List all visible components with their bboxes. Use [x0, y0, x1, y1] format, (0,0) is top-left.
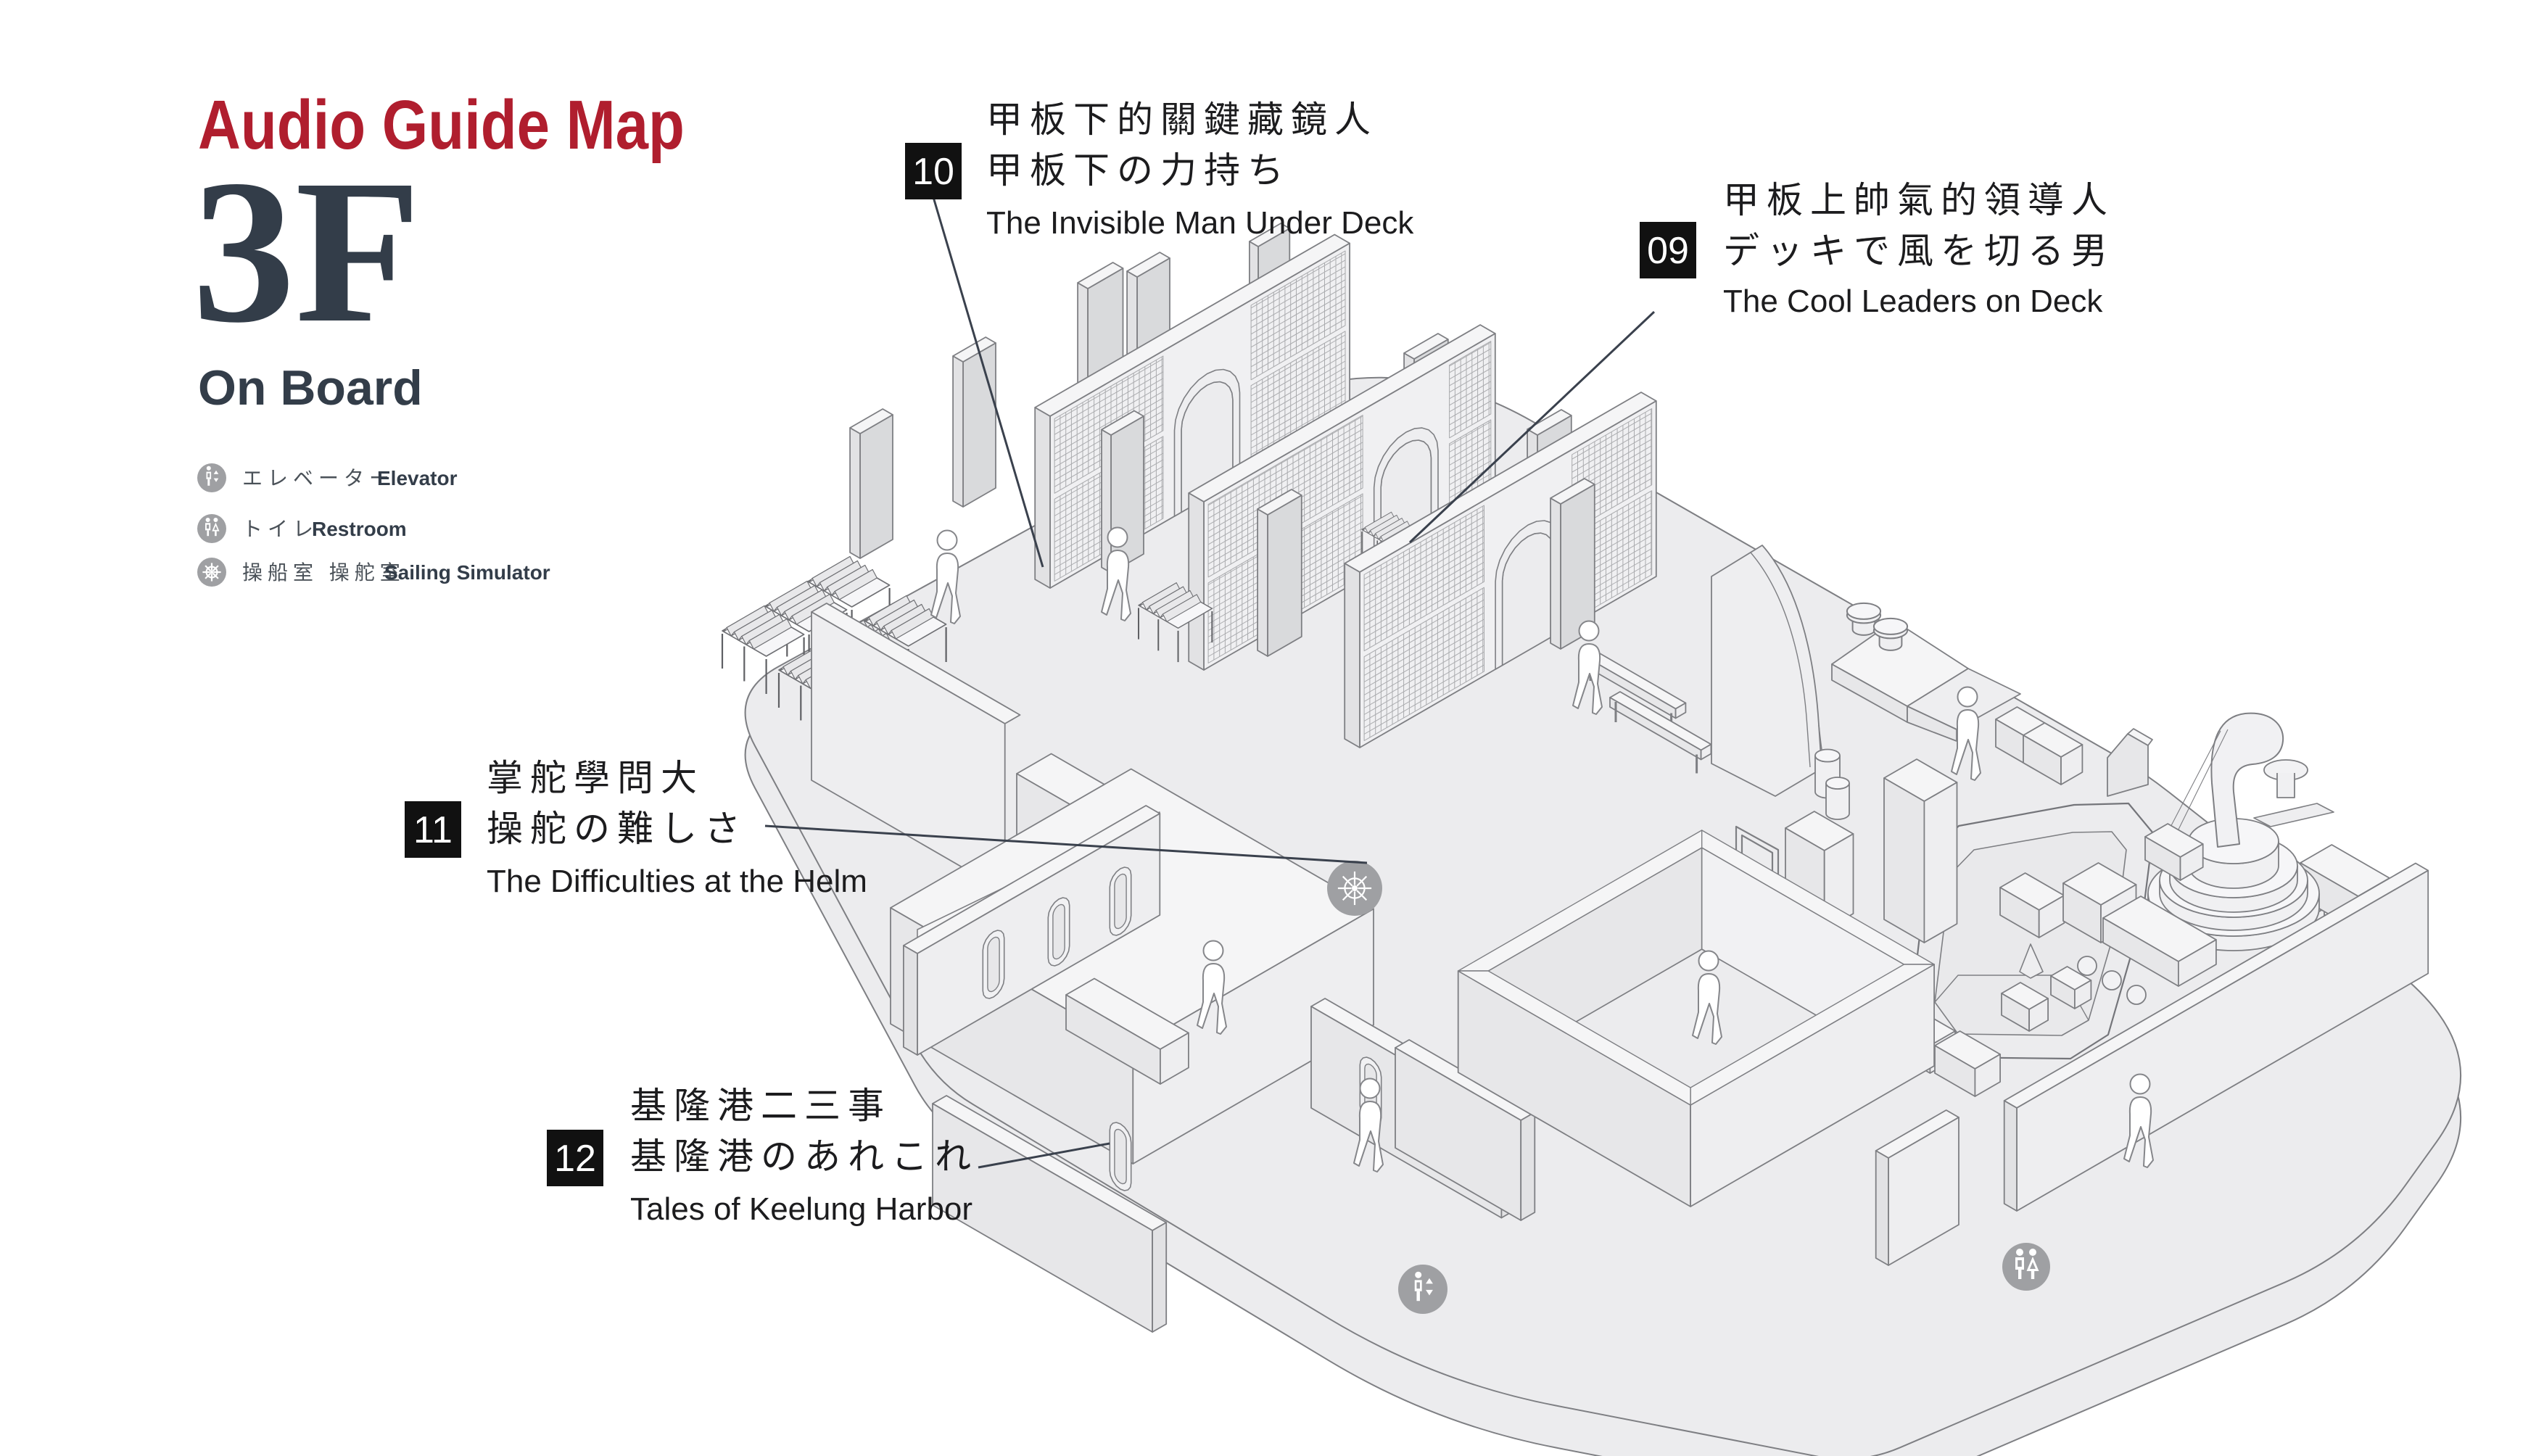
svg-text:The Invisible Man Under Deck: The Invisible Man Under Deck — [986, 205, 1414, 241]
svg-text:On Board: On Board — [198, 360, 423, 415]
svg-text:Tales of Keelung Harbor: Tales of Keelung Harbor — [630, 1191, 972, 1227]
svg-text:Restroom: Restroom — [312, 518, 407, 540]
svg-text:エレベーター: エレベーター — [242, 467, 395, 489]
svg-text:09: 09 — [1647, 230, 1689, 272]
svg-text:基隆港のあれこれ: 基隆港のあれこれ — [630, 1136, 978, 1177]
svg-text:12: 12 — [554, 1138, 596, 1180]
svg-text:The Difficulties at the Helm: The Difficulties at the Helm — [487, 864, 867, 899]
svg-text:操船室 操舵室: 操船室 操舵室 — [242, 561, 405, 584]
svg-text:10: 10 — [912, 151, 954, 193]
svg-text:11: 11 — [413, 809, 453, 851]
svg-text:掌舵學問大: 掌舵學問大 — [487, 758, 704, 798]
svg-text:デッキで風を切る男: デッキで風を切る男 — [1723, 231, 2115, 271]
svg-text:基隆港二三事: 基隆港二三事 — [630, 1085, 891, 1126]
svg-text:The Cool Leaders on Deck: The Cool Leaders on Deck — [1723, 284, 2103, 319]
svg-text:操舵の難しさ: 操舵の難しさ — [487, 808, 748, 849]
svg-text:甲板下の力持ち: 甲板下の力持ち — [986, 150, 1291, 191]
svg-text:3F: 3F — [192, 138, 421, 365]
svg-text:甲板上帥氣的領導人: 甲板上帥氣的領導人 — [1723, 180, 2115, 220]
svg-text:トイレ: トイレ — [242, 518, 318, 540]
svg-text:Elevator: Elevator — [377, 467, 458, 489]
svg-text:甲板下的關鍵藏鏡人: 甲板下的關鍵藏鏡人 — [986, 99, 1378, 140]
svg-text:Sailing Simulator: Sailing Simulator — [384, 561, 550, 584]
